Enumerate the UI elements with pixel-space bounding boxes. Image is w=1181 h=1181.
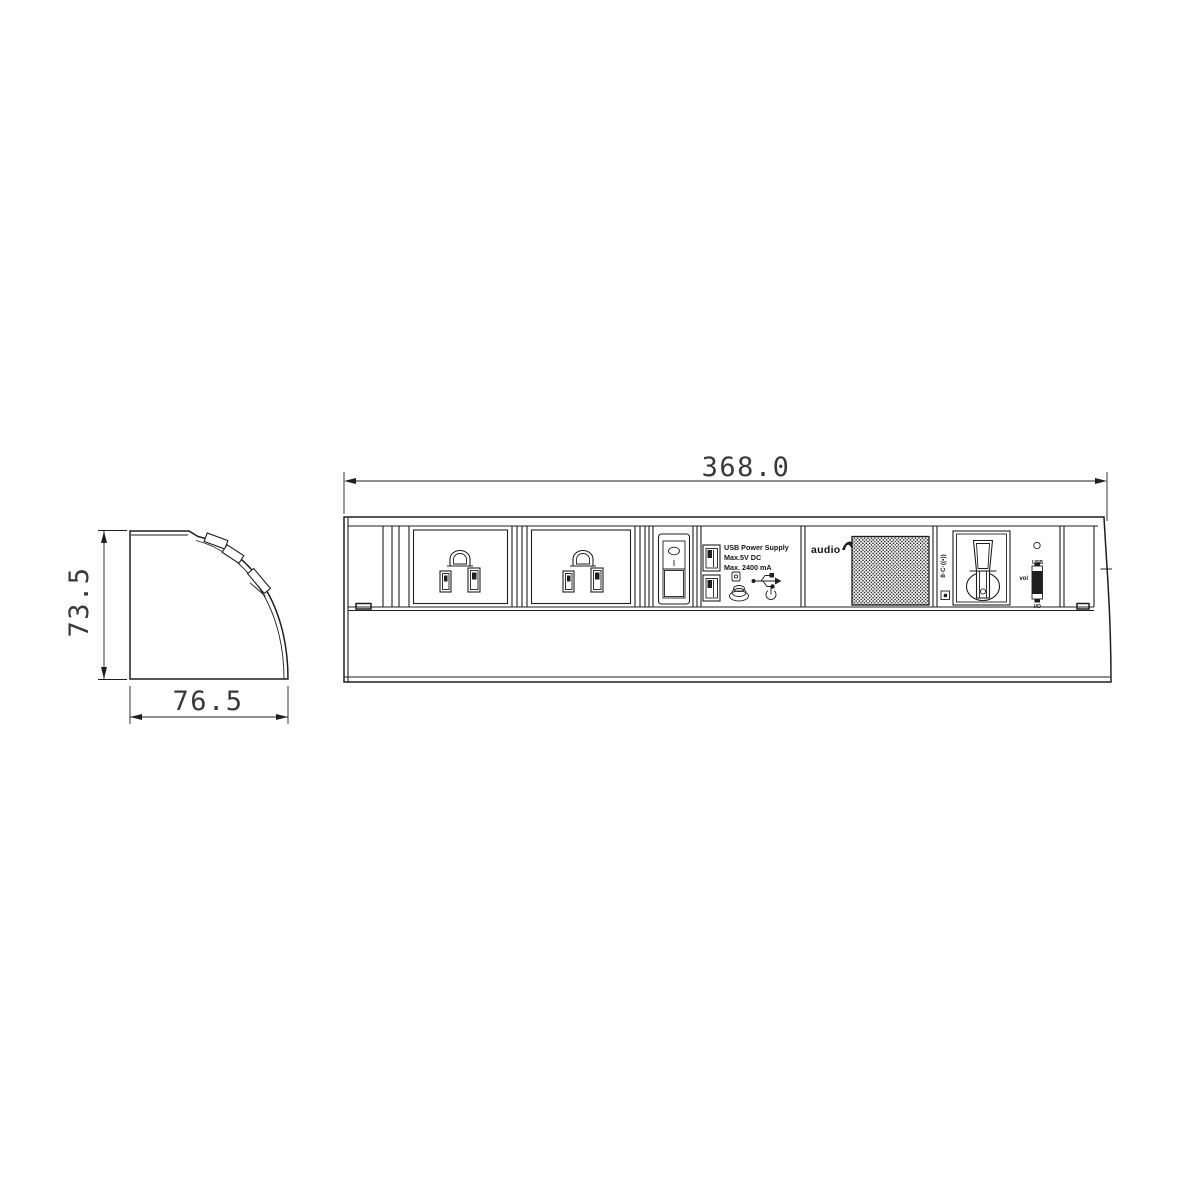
profile-inner-line (131, 535, 284, 679)
usb-spec-line1: USB Power Supply (724, 543, 789, 552)
speaker-grille (852, 537, 929, 606)
profile-outline (130, 531, 288, 679)
front-outline (344, 517, 1111, 682)
outlet-1-faceplate (414, 530, 508, 604)
clip-2 (222, 545, 244, 563)
profile-depth-text: 76.5 (172, 686, 243, 717)
arrowhead-up (101, 531, 107, 543)
outlet-module-1 (414, 530, 508, 604)
usb-port-bottom (703, 575, 720, 601)
volume-slider (1032, 563, 1043, 603)
usb-spec-line3: Max. 2400 mA (724, 563, 772, 572)
lever-latch (953, 531, 1010, 605)
power-outlet-2 (563, 551, 603, 593)
arrowhead-right (276, 714, 288, 720)
arrowhead-down (101, 667, 107, 679)
technical-drawing: 73.5 76.5 (0, 0, 1181, 1181)
mounting-tab-right (1077, 604, 1089, 610)
extension-lines (98, 531, 127, 680)
power-icon (766, 587, 776, 600)
front-width-text: 368.0 (702, 452, 791, 483)
drawing-canvas: 73.5 76.5 (0, 0, 1181, 1181)
arrowhead-right (1095, 478, 1107, 484)
profile-height-dimension: 73.5 (64, 531, 127, 680)
push-button-icon (730, 572, 749, 601)
switch-frame (663, 541, 685, 598)
front-inner-frame (344, 517, 1112, 682)
usb-port-top (703, 545, 720, 571)
power-outlet-1 (440, 551, 480, 593)
mounting-tab-left (356, 604, 371, 610)
usb-trident-icon (752, 573, 782, 589)
outlet-2-faceplate (532, 530, 631, 604)
arrowhead-left (130, 714, 142, 720)
outlet-module-2 (532, 530, 631, 604)
port-square-dot (944, 594, 947, 597)
front-width-dimension: 368.0 (344, 452, 1107, 521)
clip-1 (204, 533, 228, 549)
led-indicator (1034, 542, 1040, 548)
audio-brand-text: audio (811, 544, 841, 556)
switch-module (659, 534, 690, 604)
arrowhead-left (344, 478, 356, 484)
usb-module: USB Power Supply Max.5V DC Max. 2400 mA (703, 543, 789, 601)
audio-module: audio (811, 537, 929, 606)
connectivity-icons: 8·C·((•)) (940, 554, 947, 578)
front-view: USB Power Supply Max.5V DC Max. 2400 mA (344, 452, 1112, 682)
profile-depth-dimension: 76.5 (130, 686, 288, 724)
profile-view: 73.5 76.5 (64, 531, 288, 725)
media-module: 8·C·((•)) USB vol I/O (940, 531, 1043, 610)
rocker-switch (665, 571, 684, 597)
profile-height-text: 73.5 (64, 566, 95, 637)
vol-label: vol (1019, 576, 1028, 582)
usb-spec-line2: Max.5V DC (724, 553, 761, 562)
io-label: I/O (1034, 604, 1041, 610)
clip-3 (248, 568, 271, 593)
switch-indicator (669, 547, 680, 555)
